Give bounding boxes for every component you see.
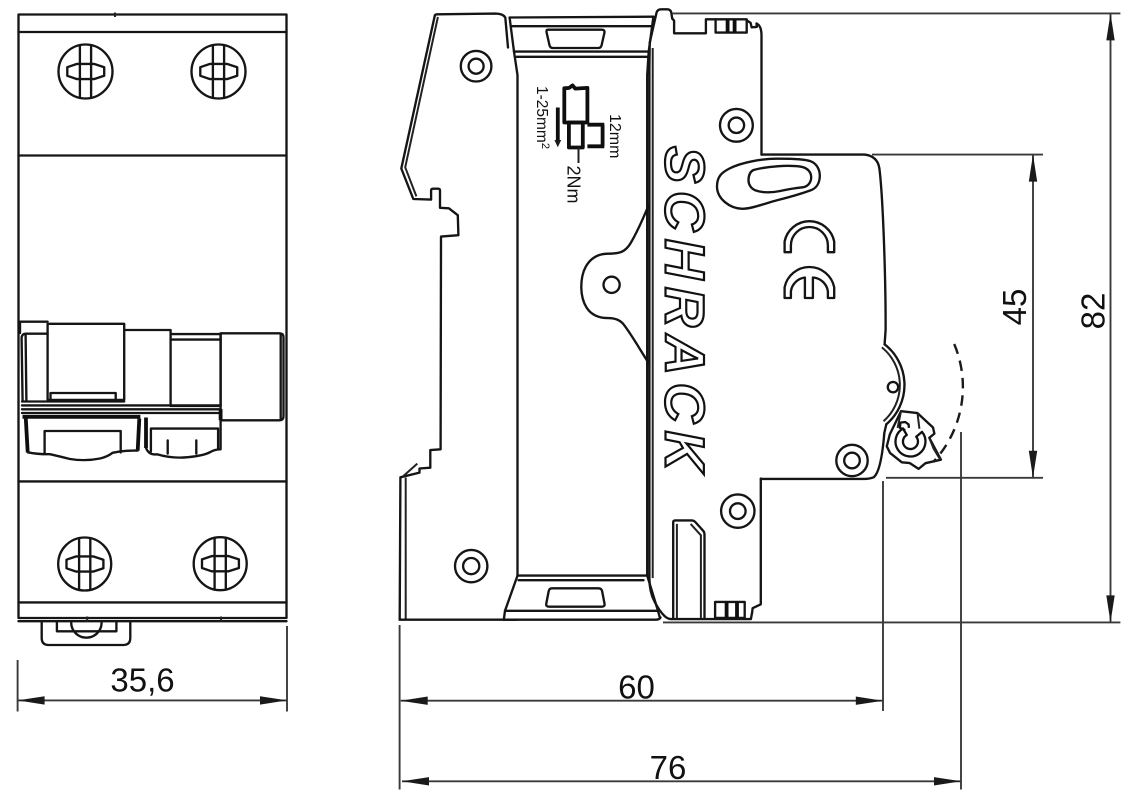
- svg-text:2Nm: 2Nm: [564, 166, 584, 204]
- svg-text:SCHRACK: SCHRACK: [654, 146, 717, 479]
- svg-text:76: 76: [650, 749, 687, 786]
- svg-text:1-25mm2: 1-25mm2: [533, 86, 551, 149]
- svg-text:35,6: 35,6: [110, 662, 174, 699]
- svg-text:45: 45: [996, 289, 1033, 326]
- svg-text:12mm: 12mm: [606, 114, 623, 158]
- svg-text:60: 60: [618, 669, 655, 706]
- svg-text:82: 82: [1075, 293, 1112, 330]
